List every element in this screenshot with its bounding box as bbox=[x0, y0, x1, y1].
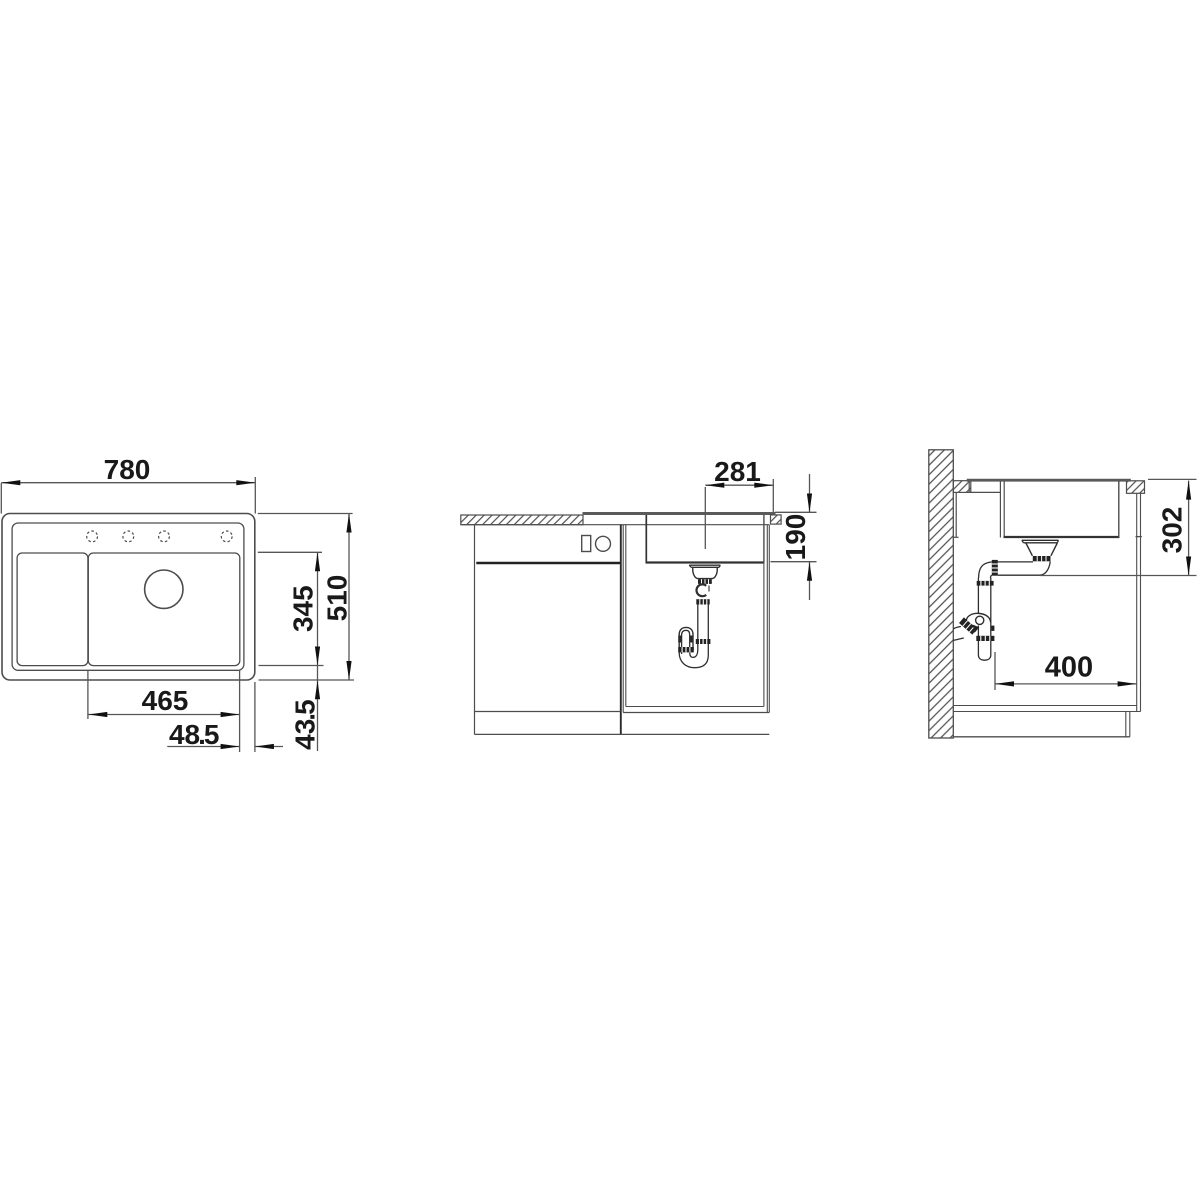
svg-text:302: 302 bbox=[1157, 507, 1188, 554]
svg-text:400: 400 bbox=[1045, 652, 1093, 684]
svg-text:190: 190 bbox=[780, 514, 811, 561]
svg-text:510: 510 bbox=[321, 575, 352, 622]
svg-text:465: 465 bbox=[142, 685, 189, 716]
svg-text:281: 281 bbox=[714, 456, 761, 487]
svg-text:48.5: 48.5 bbox=[169, 719, 220, 750]
svg-text:345: 345 bbox=[288, 585, 319, 632]
svg-text:780: 780 bbox=[104, 454, 151, 485]
svg-text:43.5: 43.5 bbox=[290, 699, 321, 750]
